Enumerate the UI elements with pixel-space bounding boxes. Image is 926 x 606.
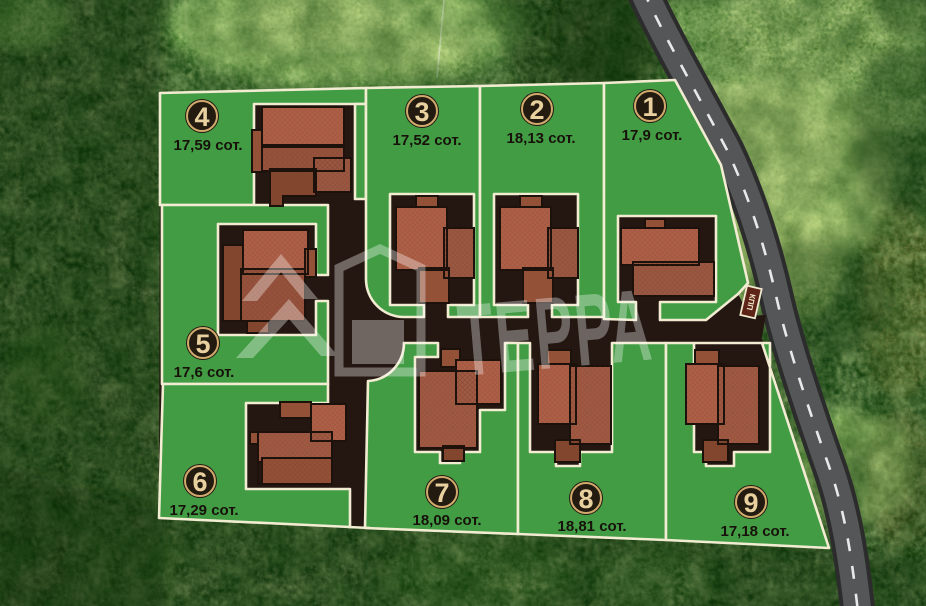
svg-text:9: 9 <box>743 488 758 518</box>
svg-text:17,6 сот.: 17,6 сот. <box>174 364 235 381</box>
svg-text:8: 8 <box>578 484 593 514</box>
svg-text:17,18 сот.: 17,18 сот. <box>720 523 789 540</box>
svg-text:5: 5 <box>195 329 210 359</box>
svg-text:17,59 сот.: 17,59 сот. <box>173 137 242 154</box>
svg-text:ТЕРРА: ТЕРРА <box>454 267 657 398</box>
svg-text:4: 4 <box>194 102 209 132</box>
svg-text:6: 6 <box>192 467 207 497</box>
svg-text:17,29 сот.: 17,29 сот. <box>169 502 238 519</box>
svg-text:18,13 сот.: 18,13 сот. <box>506 130 575 147</box>
svg-text:17,9 сот.: 17,9 сот. <box>622 127 683 144</box>
svg-text:18,09 сот.: 18,09 сот. <box>412 512 481 529</box>
svg-text:1: 1 <box>642 92 657 122</box>
svg-text:3: 3 <box>414 97 429 127</box>
svg-text:7: 7 <box>434 478 449 508</box>
svg-text:17,52 сот.: 17,52 сот. <box>392 132 461 149</box>
svg-text:18,81 сот.: 18,81 сот. <box>557 518 626 535</box>
svg-text:2: 2 <box>529 95 544 125</box>
